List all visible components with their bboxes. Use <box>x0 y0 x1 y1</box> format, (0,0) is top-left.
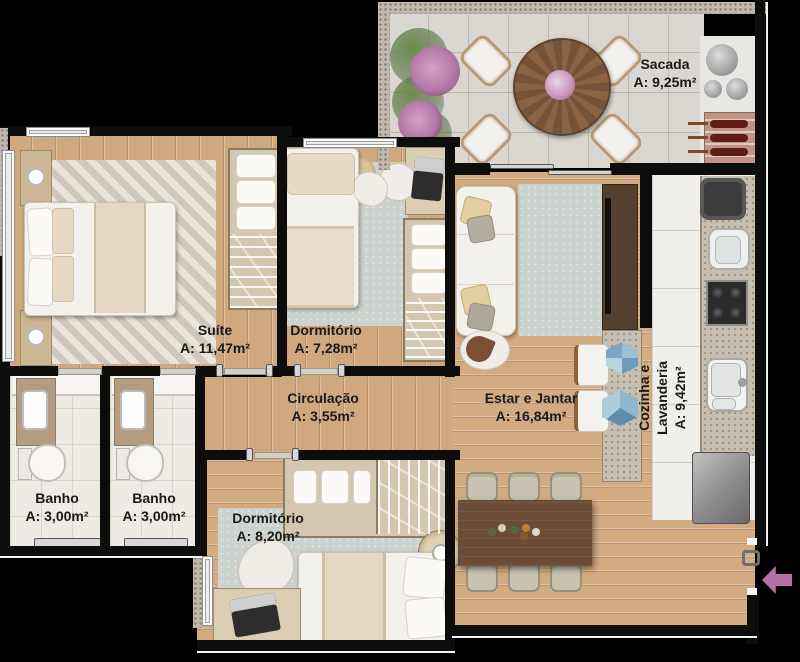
room-area: A: 9,42m² <box>672 333 690 463</box>
entrance-arrow-icon <box>762 566 792 594</box>
room-area: A: 9,25m² <box>596 74 734 92</box>
wardrobe-linen <box>236 206 276 230</box>
door-jamb <box>216 364 223 377</box>
wall <box>195 450 252 460</box>
suite-side-window <box>2 150 15 362</box>
room-area: A: 16,84m² <box>458 408 604 426</box>
washing-machine <box>700 178 746 220</box>
dining-chair <box>508 472 540 502</box>
burner <box>711 306 724 319</box>
wardrobe-linen <box>321 470 349 504</box>
laptop <box>229 592 281 637</box>
wall <box>102 366 160 376</box>
bath2-door <box>160 368 196 375</box>
wardrobe-shelves <box>230 234 280 308</box>
bath1-sink <box>22 390 48 430</box>
dining-chair <box>466 562 498 592</box>
room-name: Sacada <box>596 56 734 74</box>
wardrobe-linen <box>353 470 371 504</box>
grill-skewer <box>710 120 748 128</box>
burner <box>729 306 742 319</box>
wall <box>294 450 460 460</box>
wall <box>195 366 205 462</box>
burner <box>729 286 742 299</box>
bedroom1-window <box>303 138 397 148</box>
door-jamb <box>294 364 301 377</box>
laptop <box>411 157 445 202</box>
bath1-door <box>58 368 102 375</box>
burner <box>711 286 724 299</box>
wardrobe-hangers <box>406 298 450 358</box>
wall <box>445 145 455 377</box>
grill-skewer <box>710 148 748 156</box>
room-area: A: 3,00m² <box>14 508 100 526</box>
bed-blanket <box>94 203 146 313</box>
sofa-cushion <box>466 302 496 332</box>
wall <box>0 366 58 376</box>
floor-plan: Sacada A: 9,25m² Suíte A: 11,47m² Dormit… <box>0 0 800 662</box>
bath2-sink <box>120 390 146 430</box>
room-area: A: 3,00m² <box>110 508 198 526</box>
table-flowers <box>545 70 575 100</box>
wall <box>755 0 765 548</box>
wardrobe-linen <box>411 272 447 294</box>
entry-floor <box>652 518 755 627</box>
room-label-estar-jantar: Estar e Jantar A: 16,84m² <box>458 390 604 426</box>
bed-pillow <box>52 208 74 254</box>
room-area: A: 8,20m² <box>214 528 322 546</box>
bedroom2-window <box>202 556 213 626</box>
room-name: Dormitório <box>262 322 390 340</box>
tv <box>605 198 611 314</box>
room-label-sacada: Sacada A: 9,25m² <box>596 56 734 92</box>
bed-pillow <box>402 556 448 600</box>
room-label-suite: Suíte A: 11,47m² <box>150 322 280 358</box>
room-name: Dormitório <box>214 510 322 528</box>
outline <box>452 636 757 638</box>
bed-pillow <box>52 256 74 302</box>
wall <box>445 452 455 648</box>
entrance-jamb <box>747 538 757 545</box>
door-jamb <box>292 448 299 461</box>
bed-pillow <box>27 257 55 306</box>
door-jamb <box>266 364 273 377</box>
room-label-dormitorio-1: Dormitório A: 7,28m² <box>262 322 390 358</box>
wall <box>100 372 110 548</box>
outline <box>0 556 206 558</box>
room-name: Banho <box>110 490 198 508</box>
wardrobe-linen <box>411 224 447 246</box>
door-jamb <box>246 448 253 461</box>
sofa-cushion <box>466 214 496 244</box>
room-area: A: 3,55m² <box>258 408 388 426</box>
door-jamb <box>338 364 345 377</box>
suite-door <box>224 368 266 375</box>
sliding-door-panel <box>548 170 612 175</box>
table-centerpiece <box>498 524 506 532</box>
toilet <box>126 444 164 482</box>
sink-basin <box>711 363 741 397</box>
room-name: Circulação <box>258 390 388 408</box>
room-name: Suíte <box>150 322 280 340</box>
bed-blanket <box>286 226 354 308</box>
wardrobe-linen <box>411 248 447 270</box>
room-name: Banho <box>14 490 100 508</box>
sliding-door-panel <box>490 164 554 169</box>
dining-table <box>458 500 592 566</box>
bed-pillow <box>404 596 447 639</box>
room-label-cozinha-lavanderia: Cozinha e Lavanderia A: 9,42m² <box>636 333 690 463</box>
room-area: A: 7,28m² <box>262 340 390 358</box>
soap-dish <box>712 398 736 410</box>
bed-blanket <box>322 553 386 643</box>
wardrobe-linen <box>293 470 317 504</box>
lamp <box>27 328 45 346</box>
room-label-banho-2: Banho A: 3,00m² <box>110 490 198 526</box>
dining-chair <box>466 472 498 502</box>
dining-chair <box>550 562 582 592</box>
wall <box>640 172 652 328</box>
room-label-circulacao: Circulação A: 3,55m² <box>258 390 388 426</box>
wall <box>445 163 490 175</box>
wardrobe-linen <box>236 154 276 178</box>
living-rug <box>518 184 604 336</box>
flower-bush <box>410 46 460 96</box>
room-label-dormitorio-2: Dormitório A: 8,20m² <box>214 510 322 546</box>
dining-chair <box>508 562 540 592</box>
wardrobe-linen <box>236 180 276 204</box>
bed-pillow <box>287 153 355 195</box>
room-name-line1: Cozinha e <box>636 333 654 463</box>
room-name: Estar e Jantar <box>458 390 604 408</box>
exterior-texture <box>193 556 202 628</box>
suite-top-window <box>26 127 90 137</box>
room-name-line2: Lavanderia <box>654 333 672 463</box>
lamp <box>27 168 45 186</box>
wall <box>610 163 764 175</box>
bedroom2-door <box>254 452 292 459</box>
tank-basin <box>715 236 741 264</box>
skewer-handle <box>688 122 708 125</box>
bedroom1-door <box>300 368 338 375</box>
counter-chair <box>574 344 609 386</box>
faucet <box>738 378 747 387</box>
entrance-jamb <box>747 588 757 595</box>
outline <box>766 2 768 546</box>
wall <box>340 366 460 376</box>
wardrobe-hangers <box>376 460 450 534</box>
grill-skewer <box>710 134 748 142</box>
fridge <box>692 452 750 524</box>
entrance-door <box>742 550 760 566</box>
room-label-banho-1: Banho A: 3,00m² <box>14 490 100 526</box>
balcony-parapet-top <box>378 2 766 14</box>
toilet <box>28 444 66 482</box>
room-area: A: 11,47m² <box>150 340 280 358</box>
skewer-handle <box>688 136 708 139</box>
dining-chair <box>550 472 582 502</box>
skewer-handle <box>688 150 708 153</box>
outline <box>197 651 455 653</box>
